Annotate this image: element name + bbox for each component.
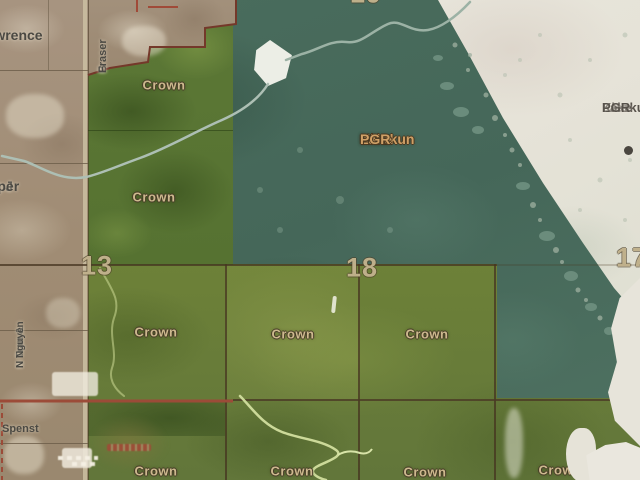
parcel-label-crown: Crown — [404, 465, 447, 480]
section-line-13-18 — [0, 264, 497, 266]
section-line-south — [233, 399, 640, 401]
parcel-line — [88, 130, 233, 131]
reserve-label-line3: PGR — [360, 130, 390, 149]
parcel-label-crown: Crown — [133, 190, 176, 205]
light-field-patch — [122, 26, 166, 56]
range-road — [83, 0, 87, 480]
section-number-13: 13 — [81, 251, 113, 282]
reserve-label-line3: PGR — [602, 98, 630, 118]
section-line-west — [88, 0, 89, 480]
parcel-line — [0, 443, 88, 444]
light-field-patch — [4, 436, 44, 474]
farmyard-patch — [52, 372, 98, 396]
section-line — [358, 264, 360, 480]
section-number-18: 18 — [346, 253, 378, 284]
owner-label-n-tran-n-nguyen: N Tran & N Nguyen — [15, 292, 41, 368]
parcel-line — [0, 330, 88, 331]
owner-surname: Fraser — [96, 39, 110, 73]
owner-surname: Jasper — [0, 176, 19, 196]
parcel-label-crown: Crown — [272, 327, 315, 342]
section-line — [494, 264, 496, 480]
parcel-label-crown: Crown — [135, 325, 178, 340]
poi-dot-icon — [624, 146, 633, 155]
parcel-label-crown: Crown — [135, 464, 178, 479]
section-number-17: 17 — [616, 243, 640, 274]
quarter-line — [48, 0, 49, 70]
light-field-patch — [6, 94, 64, 138]
small-ground-marks — [58, 456, 98, 460]
section-line — [225, 264, 227, 480]
owner-surname: Lawrence — [0, 25, 43, 45]
satellite-parcel-map[interactable]: 19 13 18 17 Crown Crown Crown Crown Crow… — [0, 0, 640, 480]
owner-label-spenst: Spenst — [2, 421, 39, 438]
owner-label-b-fraser: B Fraser — [96, 3, 126, 73]
light-field-patch — [46, 298, 80, 328]
pale-ground-streak — [505, 408, 523, 478]
small-ground-marks — [72, 462, 98, 466]
section-number-19: 19 — [350, 0, 382, 10]
farmland-strip — [0, 0, 88, 480]
parcel-label-crown: Crown — [271, 464, 314, 479]
parcel-label-crown: Crown — [406, 327, 449, 342]
parcel-line — [0, 163, 88, 164]
owner-line2: N Nguyen — [15, 321, 27, 368]
parcel-line — [0, 70, 88, 71]
parcel-label-crown: Crown — [143, 78, 186, 93]
illegible-red-road-label — [107, 444, 151, 451]
